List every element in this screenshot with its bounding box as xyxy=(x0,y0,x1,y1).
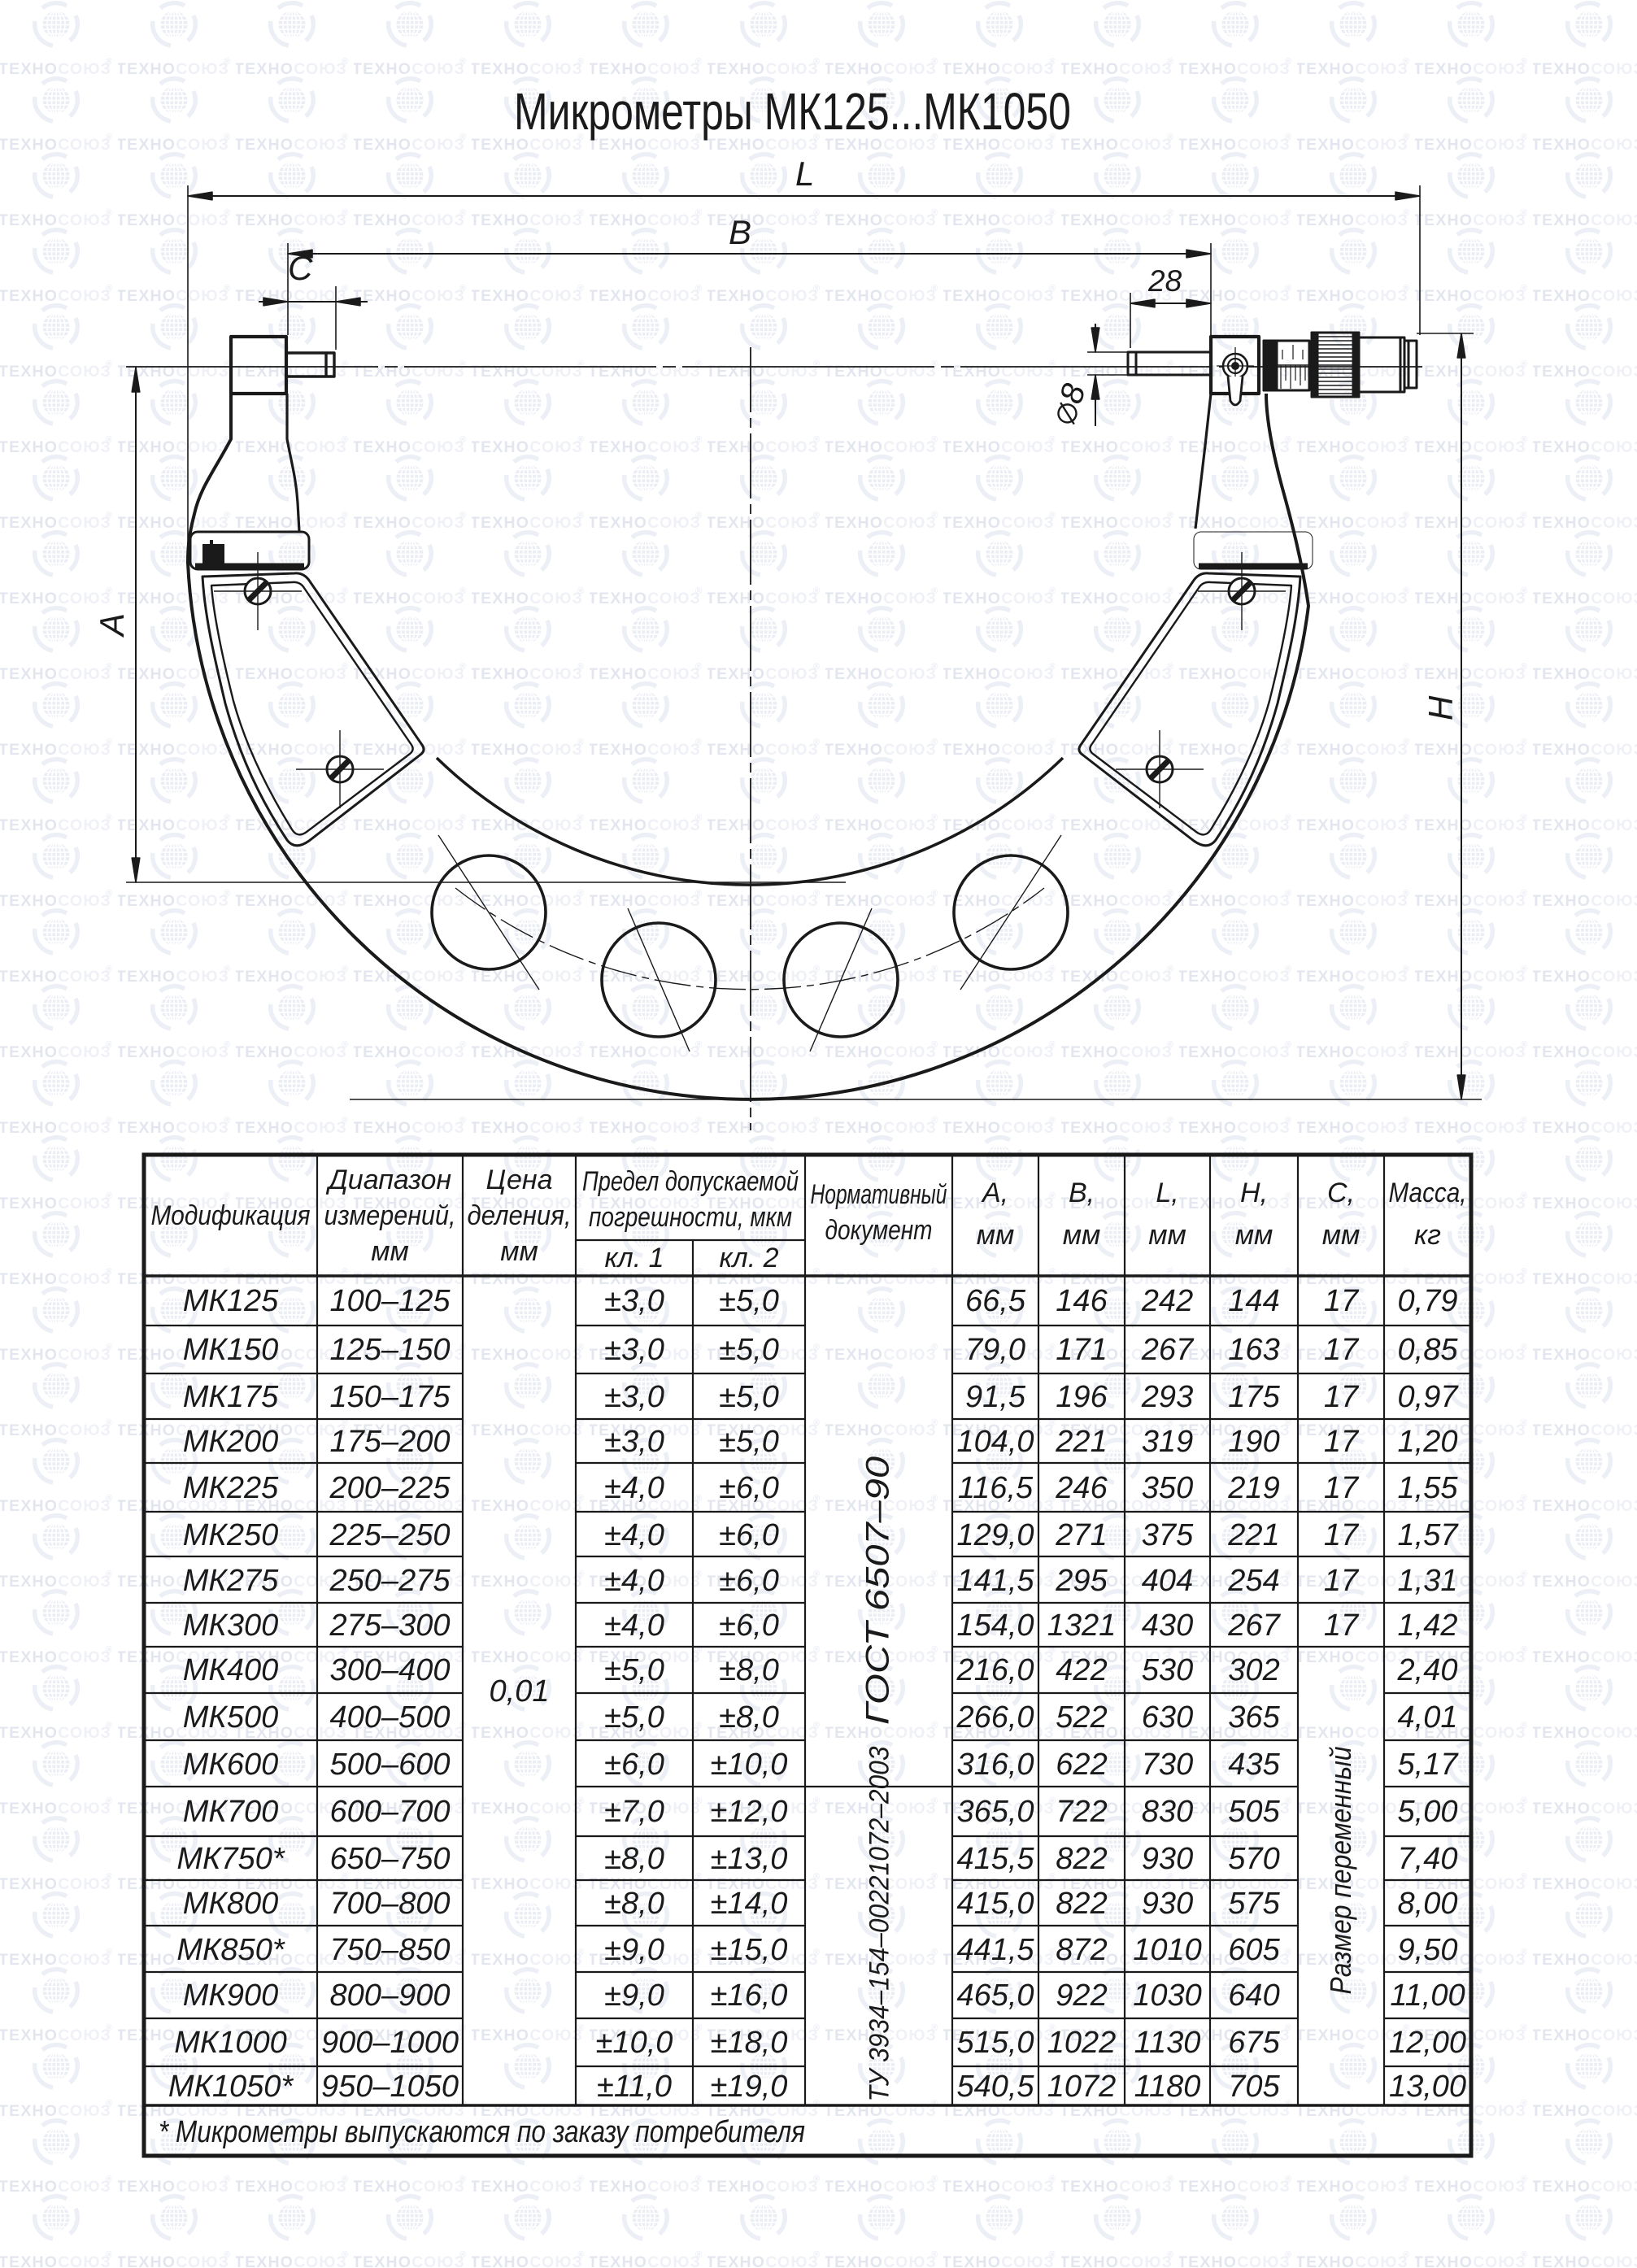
svg-text:302: 302 xyxy=(1228,1653,1279,1687)
svg-text:Цена: Цена xyxy=(486,1164,553,1195)
svg-text:316,0: 316,0 xyxy=(956,1748,1034,1782)
svg-text:±4,0: ±4,0 xyxy=(604,1518,664,1552)
svg-text:±14,0: ±14,0 xyxy=(711,1887,788,1921)
svg-text:±6,0: ±6,0 xyxy=(719,1608,779,1643)
svg-text:1010: 1010 xyxy=(1133,1933,1202,1967)
svg-text:Модификация: Модификация xyxy=(151,1200,311,1231)
svg-text:1130: 1130 xyxy=(1134,2026,1201,2060)
svg-text:±9,0: ±9,0 xyxy=(604,1933,664,1967)
svg-text:17: 17 xyxy=(1324,1425,1360,1459)
svg-text:±3,0: ±3,0 xyxy=(604,1425,664,1459)
svg-text:66,5: 66,5 xyxy=(965,1284,1026,1318)
svg-text:±3,0: ±3,0 xyxy=(604,1284,664,1318)
svg-text:0,97: 0,97 xyxy=(1398,1380,1460,1414)
svg-text:190: 190 xyxy=(1228,1425,1279,1459)
svg-text:1,20: 1,20 xyxy=(1398,1425,1458,1459)
svg-text:640: 640 xyxy=(1228,1979,1279,2013)
svg-text:522: 522 xyxy=(1056,1700,1107,1735)
svg-text:540,5: 540,5 xyxy=(956,2070,1034,2104)
svg-text:МК275: МК275 xyxy=(183,1564,279,1598)
svg-text:Масса,: Масса, xyxy=(1389,1178,1467,1208)
svg-text:104,0: 104,0 xyxy=(956,1425,1034,1459)
svg-text:141,5: 141,5 xyxy=(956,1564,1034,1598)
svg-text:267: 267 xyxy=(1141,1333,1195,1367)
svg-text:219: 219 xyxy=(1227,1471,1279,1505)
svg-text:11,00: 11,00 xyxy=(1390,1979,1465,2013)
svg-text:±4,0: ±4,0 xyxy=(604,1608,664,1643)
svg-text:МК500: МК500 xyxy=(183,1700,278,1735)
svg-text:950–1050: 950–1050 xyxy=(321,2070,459,2104)
svg-text:800–900: 800–900 xyxy=(330,1979,451,2013)
svg-text:365,0: 365,0 xyxy=(956,1795,1034,1829)
svg-text:17: 17 xyxy=(1324,1518,1360,1552)
svg-text:1,31: 1,31 xyxy=(1398,1564,1458,1598)
svg-text:мм: мм xyxy=(1063,1220,1101,1251)
svg-text:365: 365 xyxy=(1228,1700,1280,1735)
svg-text:350: 350 xyxy=(1142,1471,1193,1505)
svg-text:погрешности, мкм: погрешности, мкм xyxy=(589,1202,792,1233)
svg-text:722: 722 xyxy=(1056,1795,1107,1829)
svg-text:415,0: 415,0 xyxy=(956,1887,1034,1921)
svg-text:±16,0: ±16,0 xyxy=(711,1979,788,2013)
svg-text:1321: 1321 xyxy=(1047,1608,1117,1643)
svg-text:МК900: МК900 xyxy=(183,1979,278,2013)
svg-text:441,5: 441,5 xyxy=(956,1933,1034,1967)
svg-text:±10,0: ±10,0 xyxy=(596,2026,673,2060)
svg-text:±4,0: ±4,0 xyxy=(604,1471,664,1505)
svg-text:900–1000: 900–1000 xyxy=(321,2026,459,2060)
svg-text:±11,0: ±11,0 xyxy=(597,2070,672,2104)
svg-text:730: 730 xyxy=(1142,1748,1193,1782)
svg-text:17: 17 xyxy=(1324,1284,1360,1318)
svg-text:872: 872 xyxy=(1056,1933,1107,1967)
svg-text:705: 705 xyxy=(1228,2070,1280,2104)
svg-text:А,: А, xyxy=(981,1178,1008,1208)
svg-text:L,: L, xyxy=(1156,1178,1178,1208)
svg-text:293: 293 xyxy=(1141,1380,1193,1414)
svg-text:8,00: 8,00 xyxy=(1398,1887,1458,1921)
svg-text:МК600: МК600 xyxy=(183,1748,278,1782)
svg-text:435: 435 xyxy=(1228,1748,1280,1782)
svg-text:5,17: 5,17 xyxy=(1398,1748,1460,1782)
svg-text:9,50: 9,50 xyxy=(1398,1933,1458,1967)
svg-text:822: 822 xyxy=(1056,1887,1107,1921)
svg-text:мм: мм xyxy=(500,1236,538,1267)
svg-text:Диапазон: Диапазон xyxy=(325,1164,452,1195)
svg-text:271: 271 xyxy=(1055,1518,1107,1552)
svg-text:±19,0: ±19,0 xyxy=(711,2070,788,2104)
svg-text:7,40: 7,40 xyxy=(1398,1842,1458,1876)
svg-text:830: 830 xyxy=(1142,1795,1193,1829)
svg-text:4,01: 4,01 xyxy=(1398,1700,1458,1735)
svg-text:±6,0: ±6,0 xyxy=(719,1518,779,1552)
svg-text:375: 375 xyxy=(1142,1518,1194,1552)
svg-text:МК250: МК250 xyxy=(183,1518,278,1552)
svg-text:221: 221 xyxy=(1055,1425,1107,1459)
svg-text:1030: 1030 xyxy=(1133,1979,1202,2013)
svg-text:17: 17 xyxy=(1324,1333,1360,1367)
svg-text:0,01: 0,01 xyxy=(490,1674,550,1709)
svg-text:±5,0: ±5,0 xyxy=(719,1284,779,1318)
svg-text:254: 254 xyxy=(1227,1564,1279,1598)
svg-text:275–300: 275–300 xyxy=(329,1608,451,1643)
svg-text:±12,0: ±12,0 xyxy=(711,1795,788,1829)
svg-text:930: 930 xyxy=(1142,1887,1193,1921)
svg-text:* Микрометры выпускаются по за: * Микрометры выпускаются по заказу потре… xyxy=(159,2115,805,2149)
svg-text:125–150: 125–150 xyxy=(330,1333,451,1367)
svg-text:Размер переменный: Размер переменный xyxy=(1324,1747,1357,1995)
svg-text:175–200: 175–200 xyxy=(330,1425,451,1459)
svg-text:±3,0: ±3,0 xyxy=(604,1333,664,1367)
svg-text:мм: мм xyxy=(1148,1220,1186,1251)
svg-text:±8,0: ±8,0 xyxy=(719,1653,779,1687)
svg-text:±6,0: ±6,0 xyxy=(604,1748,664,1782)
svg-text:мм: мм xyxy=(1322,1220,1361,1251)
svg-text:мм: мм xyxy=(977,1220,1015,1251)
svg-text:0,79: 0,79 xyxy=(1398,1284,1458,1318)
svg-text:±5,0: ±5,0 xyxy=(719,1380,779,1414)
svg-text:465,0: 465,0 xyxy=(956,1979,1034,2013)
svg-text:175: 175 xyxy=(1228,1380,1280,1414)
svg-text:515,0: 515,0 xyxy=(956,2026,1034,2060)
svg-text:146: 146 xyxy=(1056,1284,1108,1318)
svg-text:650–750: 650–750 xyxy=(330,1842,451,1876)
svg-text:5,00: 5,00 xyxy=(1398,1795,1458,1829)
svg-text:216,0: 216,0 xyxy=(956,1653,1034,1687)
svg-text:266,0: 266,0 xyxy=(956,1700,1034,1735)
svg-text:750–850: 750–850 xyxy=(330,1933,451,1967)
svg-text:МК1050*: МК1050* xyxy=(168,2070,294,2104)
svg-text:±8,0: ±8,0 xyxy=(719,1700,779,1735)
svg-text:1180: 1180 xyxy=(1134,2070,1201,2104)
svg-text:570: 570 xyxy=(1228,1842,1279,1876)
svg-text:МК125: МК125 xyxy=(183,1284,279,1318)
svg-text:МК750*: МК750* xyxy=(176,1842,285,1876)
svg-text:600–700: 600–700 xyxy=(330,1795,451,1829)
svg-text:Н,: Н, xyxy=(1240,1178,1268,1208)
svg-text:17: 17 xyxy=(1324,1471,1360,1505)
svg-text:±8,0: ±8,0 xyxy=(604,1887,664,1921)
svg-text:319: 319 xyxy=(1142,1425,1193,1459)
svg-text:кг: кг xyxy=(1414,1220,1441,1251)
svg-text:930: 930 xyxy=(1142,1842,1193,1876)
svg-text:163: 163 xyxy=(1228,1333,1279,1367)
svg-text:МК400: МК400 xyxy=(183,1653,278,1687)
svg-text:МК700: МК700 xyxy=(183,1795,278,1829)
svg-text:295: 295 xyxy=(1055,1564,1108,1598)
svg-text:±13,0: ±13,0 xyxy=(711,1842,788,1876)
svg-text:С,: С, xyxy=(1327,1178,1355,1208)
svg-text:МК300: МК300 xyxy=(183,1608,278,1643)
svg-text:225–250: 225–250 xyxy=(329,1518,451,1552)
svg-text:1072: 1072 xyxy=(1047,2070,1117,2104)
svg-text:400–500: 400–500 xyxy=(330,1700,451,1735)
svg-text:1,42: 1,42 xyxy=(1398,1608,1458,1643)
svg-text:404: 404 xyxy=(1142,1564,1193,1598)
svg-text:МК200: МК200 xyxy=(183,1425,278,1459)
svg-text:МК225: МК225 xyxy=(183,1471,279,1505)
svg-text:150–175: 150–175 xyxy=(330,1380,451,1414)
svg-text:±6,0: ±6,0 xyxy=(719,1471,779,1505)
svg-text:±5,0: ±5,0 xyxy=(719,1333,779,1367)
svg-text:ГОСТ 6507–90: ГОСТ 6507–90 xyxy=(860,1456,896,1725)
svg-text:144: 144 xyxy=(1228,1284,1279,1318)
svg-text:17: 17 xyxy=(1324,1608,1360,1643)
svg-text:822: 822 xyxy=(1056,1842,1107,1876)
svg-text:605: 605 xyxy=(1228,1933,1280,1967)
svg-text:250–275: 250–275 xyxy=(329,1564,451,1598)
svg-text:В,: В, xyxy=(1069,1178,1095,1208)
svg-text:505: 505 xyxy=(1228,1795,1280,1829)
svg-text:кл. 1: кл. 1 xyxy=(604,1243,664,1273)
svg-text:0,85: 0,85 xyxy=(1398,1333,1459,1367)
svg-text:Предел допускаемой: Предел допускаемой xyxy=(582,1166,799,1197)
svg-text:575: 575 xyxy=(1228,1887,1280,1921)
svg-text:мм: мм xyxy=(1235,1220,1273,1251)
svg-text:±9,0: ±9,0 xyxy=(604,1979,664,2013)
svg-text:±10,0: ±10,0 xyxy=(711,1748,788,1782)
svg-text:12,00: 12,00 xyxy=(1389,2026,1466,2060)
svg-text:242: 242 xyxy=(1141,1284,1193,1318)
svg-text:171: 171 xyxy=(1056,1333,1107,1367)
svg-text:МК800: МК800 xyxy=(183,1887,278,1921)
svg-text:267: 267 xyxy=(1227,1608,1281,1643)
svg-text:116,5: 116,5 xyxy=(958,1471,1034,1505)
svg-text:±15,0: ±15,0 xyxy=(711,1933,788,1967)
svg-text:530: 530 xyxy=(1142,1653,1193,1687)
svg-text:±6,0: ±6,0 xyxy=(719,1564,779,1598)
svg-text:91,5: 91,5 xyxy=(965,1380,1026,1414)
svg-text:415,5: 415,5 xyxy=(956,1842,1034,1876)
svg-text:300–400: 300–400 xyxy=(330,1653,451,1687)
svg-text:154,0: 154,0 xyxy=(956,1608,1034,1643)
svg-text:±18,0: ±18,0 xyxy=(711,2026,788,2060)
svg-text:246: 246 xyxy=(1055,1471,1108,1505)
svg-text:1,57: 1,57 xyxy=(1398,1518,1460,1552)
svg-text:13,00: 13,00 xyxy=(1389,2070,1466,2104)
svg-text:2,40: 2,40 xyxy=(1397,1653,1458,1687)
svg-text:МК150: МК150 xyxy=(183,1333,278,1367)
svg-text:100–125: 100–125 xyxy=(330,1284,451,1318)
svg-text:±7,0: ±7,0 xyxy=(604,1795,664,1829)
svg-text:±5,0: ±5,0 xyxy=(719,1425,779,1459)
svg-text:17: 17 xyxy=(1324,1380,1360,1414)
svg-text:622: 622 xyxy=(1056,1748,1107,1782)
svg-text:деления,: деления, xyxy=(468,1200,572,1231)
svg-text:±4,0: ±4,0 xyxy=(604,1564,664,1598)
svg-text:700–800: 700–800 xyxy=(330,1887,451,1921)
svg-text:129,0: 129,0 xyxy=(956,1518,1034,1552)
svg-text:±8,0: ±8,0 xyxy=(604,1842,664,1876)
svg-text:МК175: МК175 xyxy=(183,1380,279,1414)
svg-text:кл. 2: кл. 2 xyxy=(719,1243,778,1273)
svg-text:±3,0: ±3,0 xyxy=(604,1380,664,1414)
svg-text:±5,0: ±5,0 xyxy=(604,1653,664,1687)
svg-text:1022: 1022 xyxy=(1047,2026,1117,2060)
svg-text:196: 196 xyxy=(1056,1380,1108,1414)
svg-text:17: 17 xyxy=(1324,1564,1360,1598)
svg-text:МК850*: МК850* xyxy=(176,1933,285,1967)
svg-text:675: 675 xyxy=(1228,2026,1280,2060)
svg-text:измерений,: измерений, xyxy=(324,1200,456,1231)
svg-text:500–600: 500–600 xyxy=(330,1748,451,1782)
svg-text:221: 221 xyxy=(1227,1518,1279,1552)
svg-text:422: 422 xyxy=(1056,1653,1107,1687)
svg-text:±5,0: ±5,0 xyxy=(604,1700,664,1735)
svg-text:мм: мм xyxy=(371,1236,409,1267)
svg-text:922: 922 xyxy=(1056,1979,1107,2013)
svg-text:документ: документ xyxy=(825,1215,933,1246)
svg-text:630: 630 xyxy=(1142,1700,1193,1735)
svg-text:1,55: 1,55 xyxy=(1398,1471,1459,1505)
svg-text:200–225: 200–225 xyxy=(329,1471,451,1505)
svg-text:МК1000: МК1000 xyxy=(174,2026,287,2060)
svg-text:ТУ 3934–154–00221072–2003: ТУ 3934–154–00221072–2003 xyxy=(864,1746,895,2101)
svg-text:79,0: 79,0 xyxy=(965,1333,1025,1367)
svg-text:430: 430 xyxy=(1142,1608,1193,1643)
svg-text:Нормативный: Нормативный xyxy=(811,1179,947,1210)
